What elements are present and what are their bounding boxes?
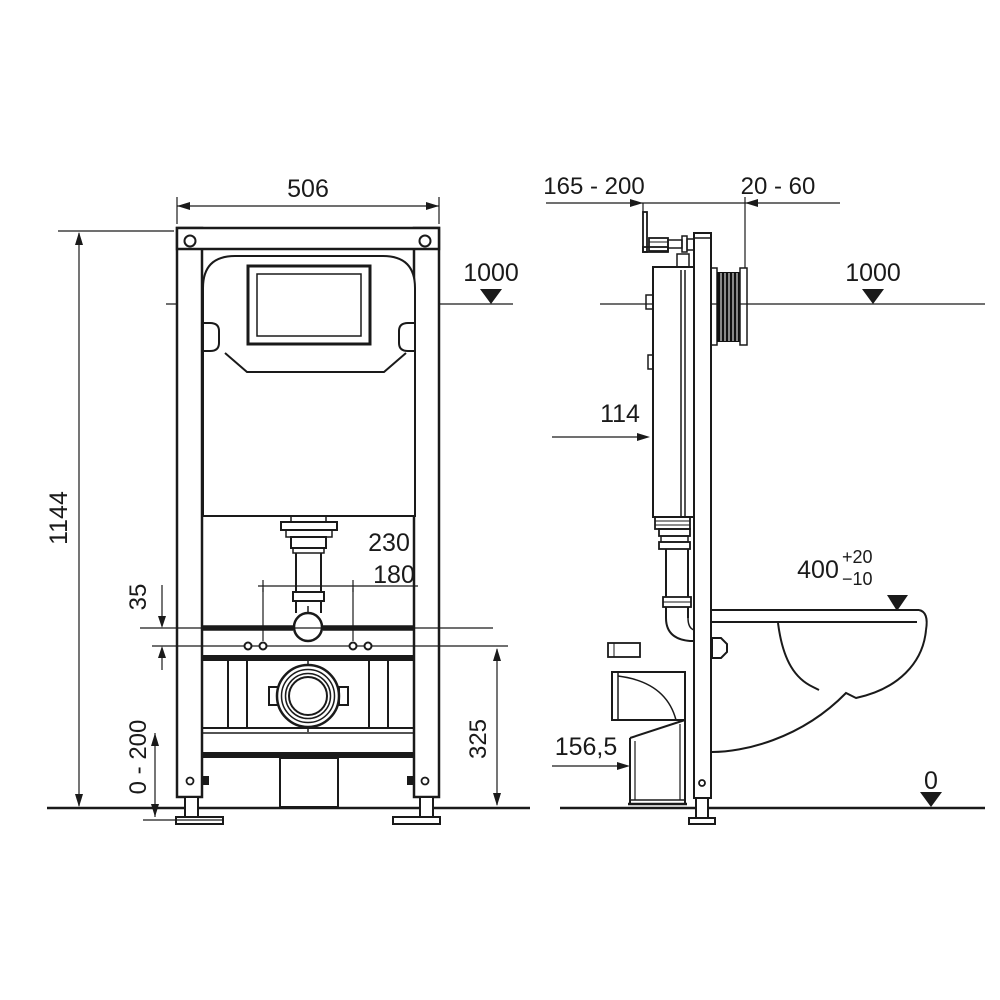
toilet-bowl [712,610,927,752]
dim-label-400: 400 [797,556,839,584]
supply-connection [294,613,322,641]
dim-label-0-200: 0 - 200 [125,720,152,795]
anchor-hole [245,643,252,650]
flush-pipe-front [281,516,337,641]
dim-label-180: 180 [373,561,415,589]
dim-top-side: 165 - 200 20 - 60 [543,173,840,268]
dim-114: 114 [552,400,650,441]
dim-label-35: 35 [125,584,152,611]
side-tab-left [203,323,219,351]
waste-bend-side [612,672,687,804]
anchor-hole [350,643,357,650]
anchor-hole [260,643,267,650]
flush-plate-box [711,268,747,345]
dim-label-156-5: 156,5 [555,733,618,761]
dim-label-tol-minus: −10 [842,569,873,589]
technical-drawing-page: 1144 506 1000 [0,0,1000,1000]
dim-156-5: 156,5 [552,733,630,770]
leg-clip-left [203,776,209,785]
cistern-side [646,254,694,517]
dim-anchor-spacing: 230 180 [258,529,418,641]
dim-width-506: 506 [177,175,439,224]
front-view: 1144 506 1000 [45,175,530,824]
dim-325: 325 [465,648,501,806]
lower-frame [187,658,429,807]
side-tab-right [399,323,415,351]
installation-frame-drawing: 1144 506 1000 [0,0,1000,1000]
level-marker-0: 0 [920,767,942,807]
dim-label-20-60: 20 - 60 [741,173,816,200]
side-view: 165 - 200 20 - 60 1000 [543,173,985,824]
dim-leg-adjust: 0 - 200 [125,720,223,820]
dim-label-1144: 1144 [45,491,73,545]
dim-label-tol-plus: +20 [842,547,873,567]
dim-label-230: 230 [368,529,410,557]
dim-35: 35 [125,584,166,670]
fill-valve-nipple [677,254,689,267]
outlet-bend-front [280,758,338,807]
dim-label-165-200: 165 - 200 [543,173,644,200]
leg-clip-right [407,776,413,785]
bowl-mounting-stud [712,638,727,658]
wall-bracket [643,212,694,252]
anchor-hole [365,643,372,650]
outlet-lug-right [339,687,348,705]
dim-label-506: 506 [287,175,329,203]
hanger-hole-left [185,236,196,247]
pipe-holder [608,643,640,657]
waste-outlet [277,665,339,727]
level-label-1000-side: 1000 [845,259,901,287]
hanger-hole-right [420,236,431,247]
bracket-bolt-shaft [668,240,682,248]
bracket-bolt-head [649,238,668,251]
cistern-front [203,256,415,516]
dim-label-114: 114 [600,400,640,428]
dim-400-tolerance: 400 +20 −10 [797,547,908,611]
level-label-0: 0 [924,767,938,795]
dim-label-325: 325 [465,719,492,759]
dim-height-1144: 1144 [45,231,174,807]
level-label-1000-front: 1000 [463,259,519,287]
